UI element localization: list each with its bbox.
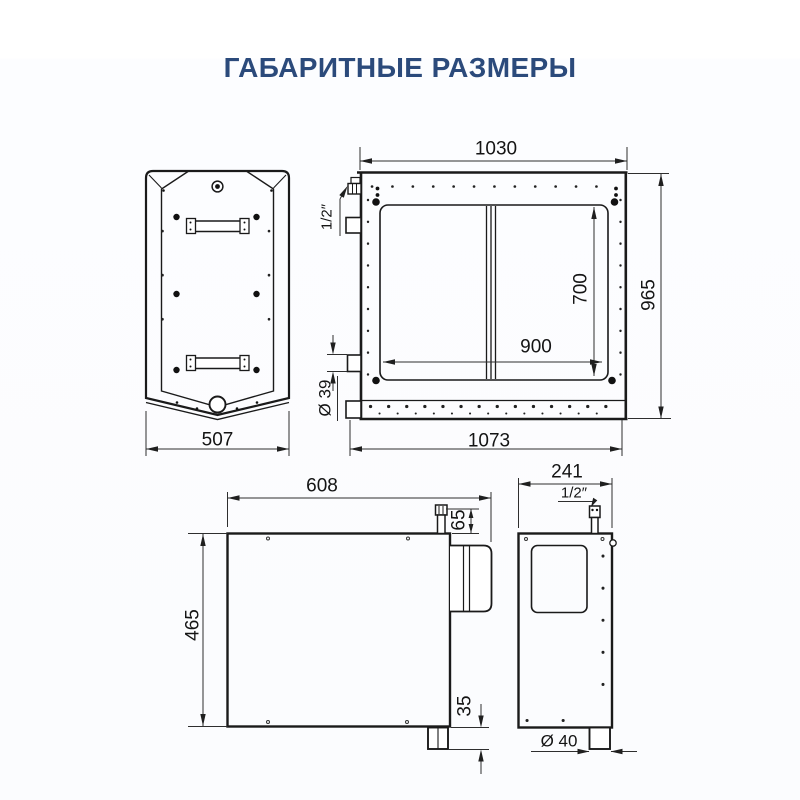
dim-label-965: 965 xyxy=(639,279,660,311)
top-view: 507 xyxy=(146,171,289,456)
dim-label-half-inch-front: 1/2″ xyxy=(319,203,336,230)
dimension-door-width: 900 xyxy=(383,337,602,365)
bottom-hole xyxy=(210,397,226,413)
pipe-stub-upper xyxy=(346,218,361,234)
dimension-drain-stub: 35 xyxy=(449,695,489,774)
dimension-front-body-width: 1030 xyxy=(360,139,627,171)
callout-pipe-d39: Ø 39 xyxy=(316,335,348,421)
steam-fitting xyxy=(351,178,360,184)
dimension-side-height: 465 xyxy=(183,534,228,727)
side-front-housing xyxy=(450,546,492,612)
dimensions-drawing: 507 xyxy=(0,0,800,800)
dim-label-465: 465 xyxy=(183,609,204,641)
callout-back-fitting: 1/2″ xyxy=(558,485,597,508)
pipe-stub-lower xyxy=(346,401,361,418)
back-window xyxy=(532,546,588,613)
handle-upper xyxy=(187,219,250,234)
dim-label-1073: 1073 xyxy=(468,431,510,452)
back-body xyxy=(519,534,613,728)
top-view-corner-chamfer-left xyxy=(149,175,162,188)
dim-label-half-inch-back: 1/2″ xyxy=(561,485,588,502)
side-top-fitting xyxy=(436,505,448,534)
dim-label-241: 241 xyxy=(551,462,583,483)
dim-label-d39: Ø 39 xyxy=(316,380,335,417)
callout-drain-d40: Ø 40 xyxy=(531,732,637,755)
dimension-fitting-height: 65 xyxy=(446,509,479,534)
back-top-fitting xyxy=(590,506,601,534)
back-hinge-pin xyxy=(610,540,616,546)
front-view: 1030 965 700 900 xyxy=(316,139,672,457)
dim-label-1030: 1030 xyxy=(475,139,517,160)
side-body xyxy=(228,534,451,727)
dimension-top-width: 507 xyxy=(146,411,289,456)
side-view: 608 465 65 xyxy=(183,476,492,775)
dim-label-507: 507 xyxy=(202,430,234,451)
top-view-corner-chamfer-right xyxy=(274,175,287,188)
dimension-front-body-height: 965 xyxy=(628,174,671,419)
dim-label-35: 35 xyxy=(455,695,476,716)
back-screw-dots xyxy=(525,538,617,721)
page: ГАБАРИТНЫЕ РАЗМЕРЫ xyxy=(0,0,800,800)
side-drain-stub xyxy=(428,728,448,750)
dim-label-608: 608 xyxy=(306,476,338,497)
top-view-outer-body xyxy=(146,171,289,415)
back-view: 241 1/2″ Ø 40 xyxy=(519,462,638,755)
dim-label-65: 65 xyxy=(449,509,470,530)
dimension-door-height: 700 xyxy=(571,207,597,376)
dim-label-d40: Ø 40 xyxy=(541,732,578,751)
dim-label-700: 700 xyxy=(571,273,592,305)
pipe-stub-d39 xyxy=(348,355,362,372)
back-drain-stub xyxy=(590,728,611,750)
front-left-fittings xyxy=(346,178,361,419)
dim-label-900: 900 xyxy=(520,337,552,358)
dimension-front-overall-width: 1073 xyxy=(350,420,622,456)
handle-lower xyxy=(187,356,250,371)
top-screw-center xyxy=(215,184,220,189)
callout-front-fitting: 1/2″ xyxy=(319,186,348,236)
door-divider xyxy=(487,206,496,379)
